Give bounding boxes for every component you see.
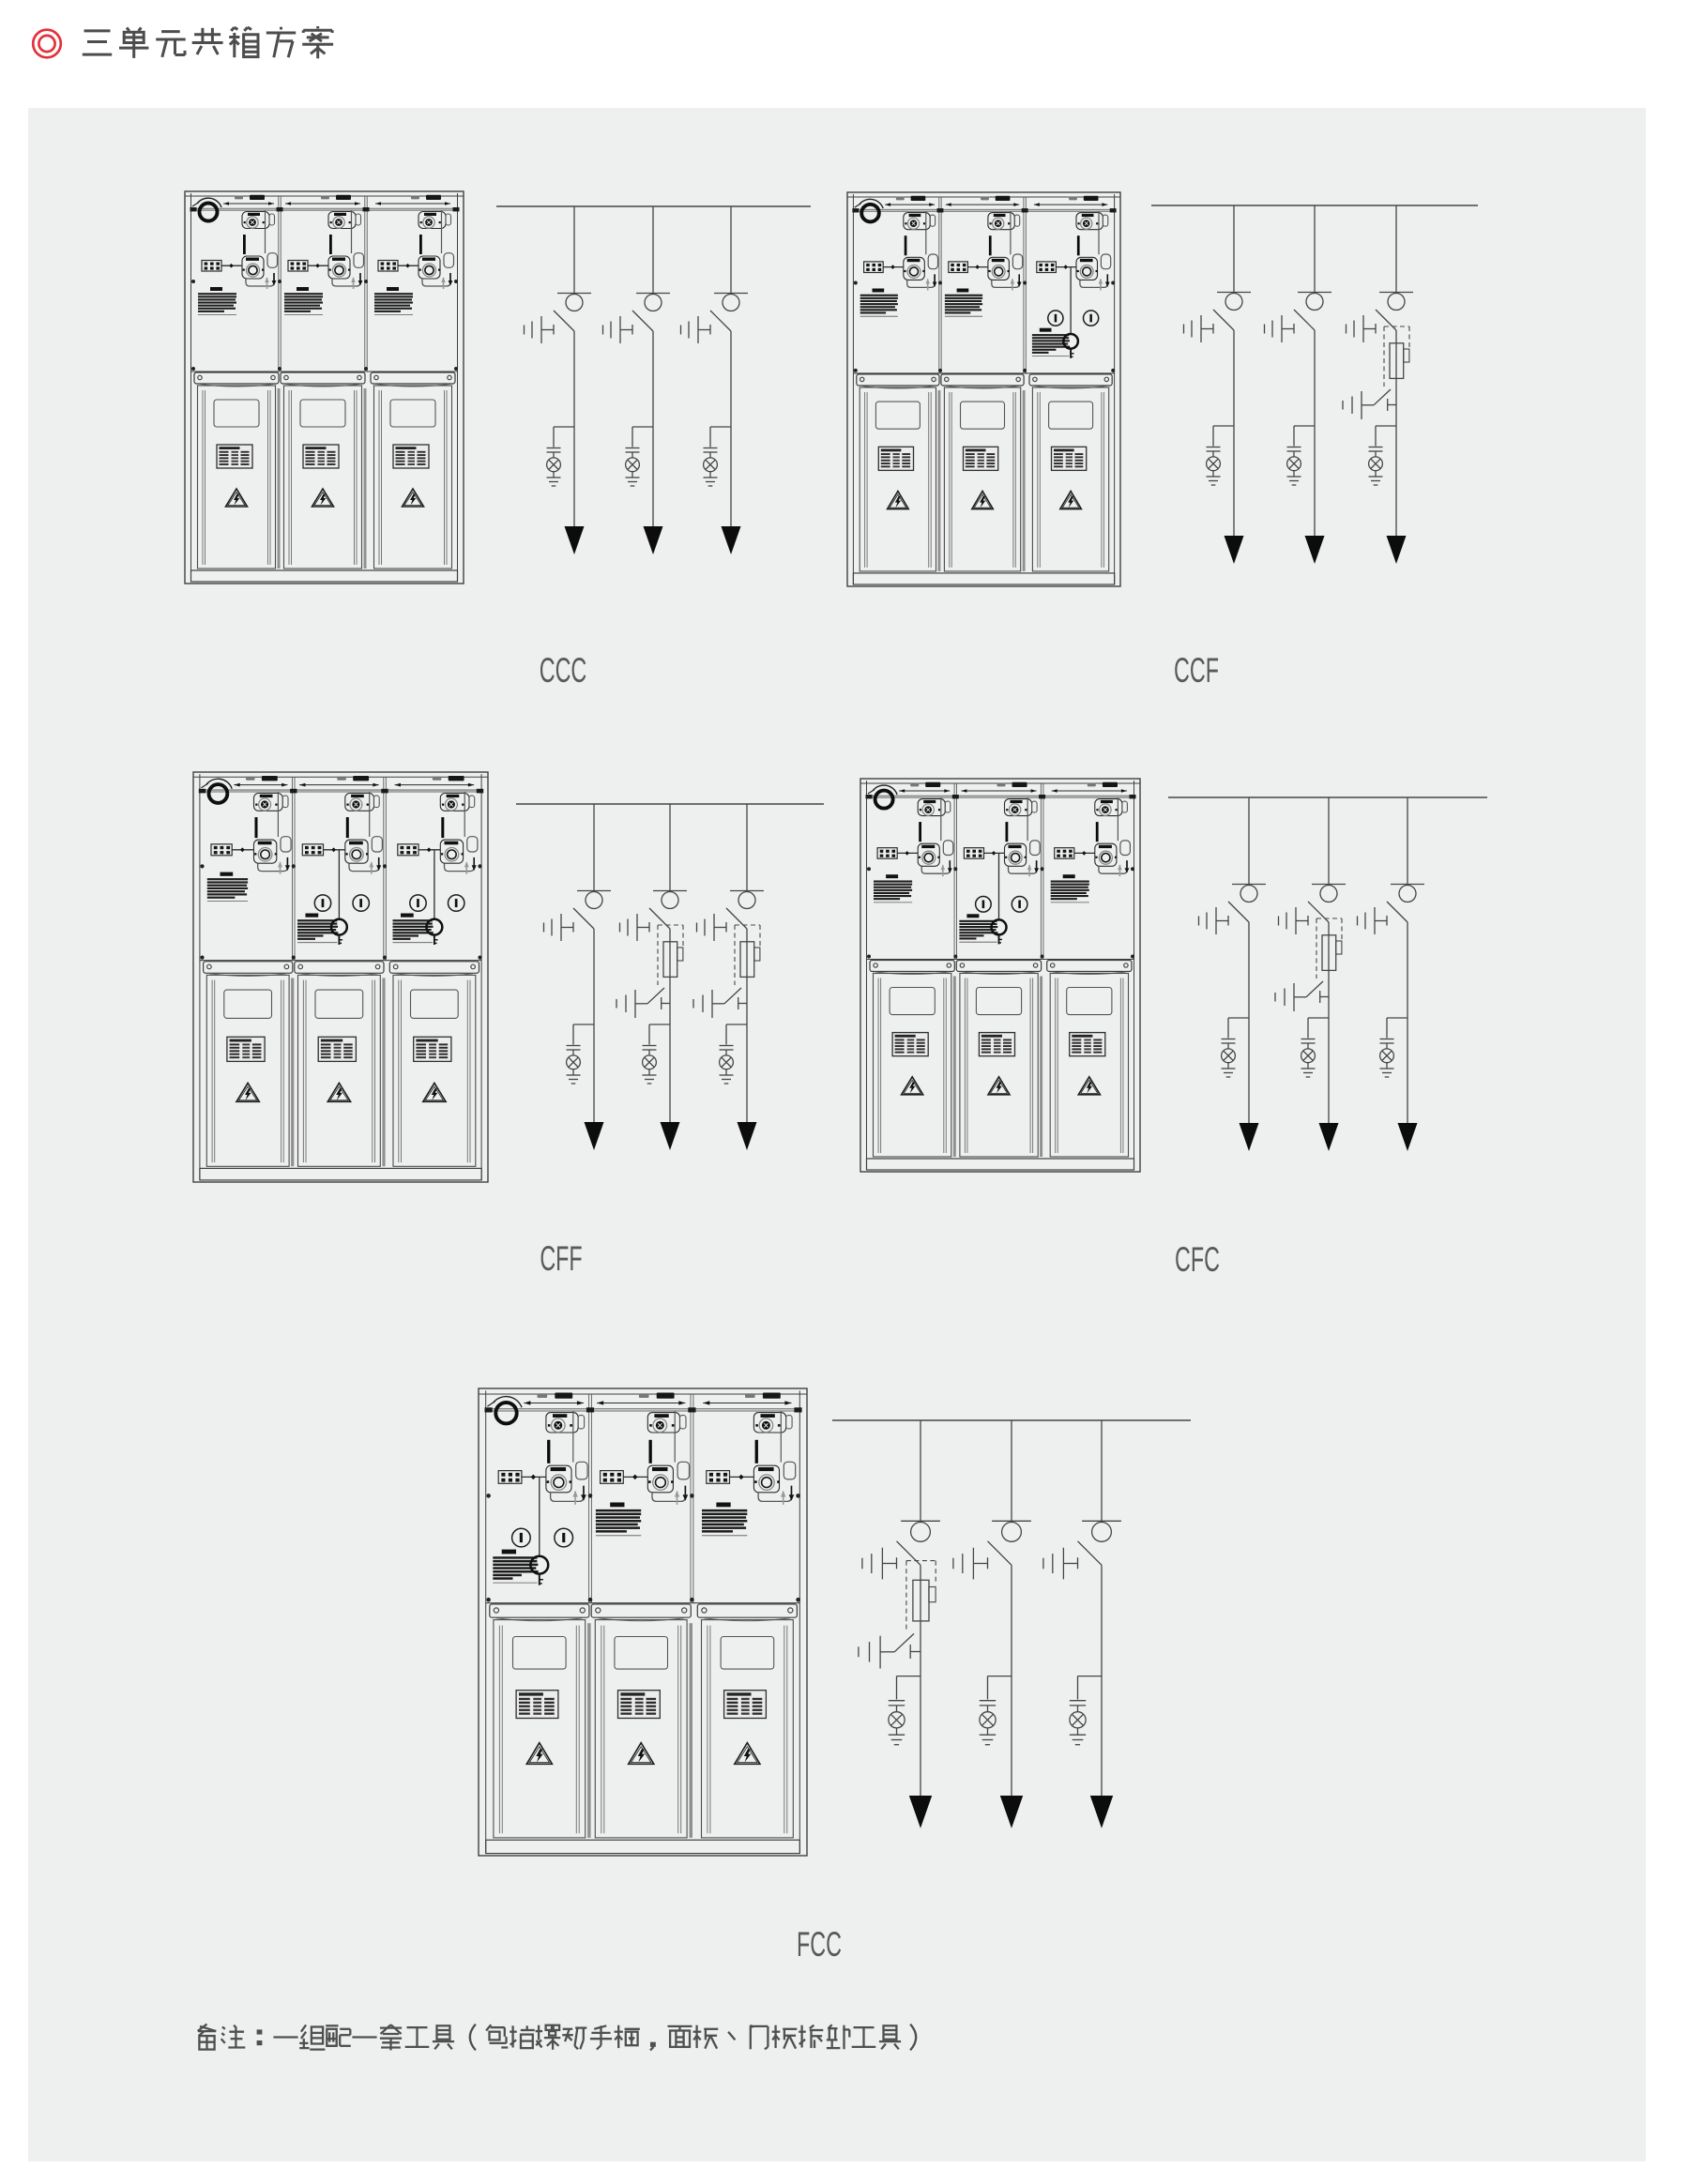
svg-text:FCC: FCC — [797, 1924, 842, 1964]
svg-text:CFC: CFC — [1175, 1239, 1220, 1279]
svg-text:CFF: CFF — [540, 1238, 582, 1278]
svg-text:CCF: CCF — [1174, 650, 1219, 690]
svg-text:CCC: CCC — [540, 650, 586, 690]
